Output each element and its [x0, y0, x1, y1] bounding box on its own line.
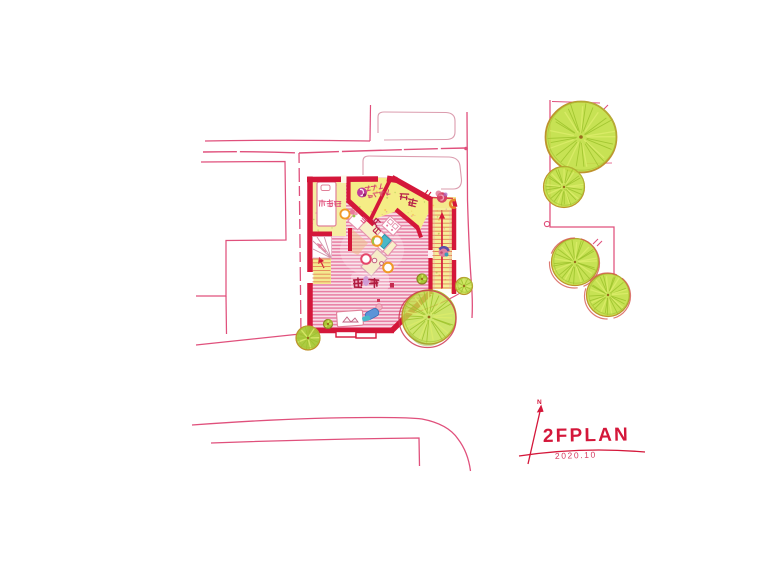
svg-text:2FPLAN: 2FPLAN: [543, 424, 630, 447]
svg-text:2020.10: 2020.10: [555, 450, 597, 461]
svg-text:N: N: [537, 399, 542, 406]
